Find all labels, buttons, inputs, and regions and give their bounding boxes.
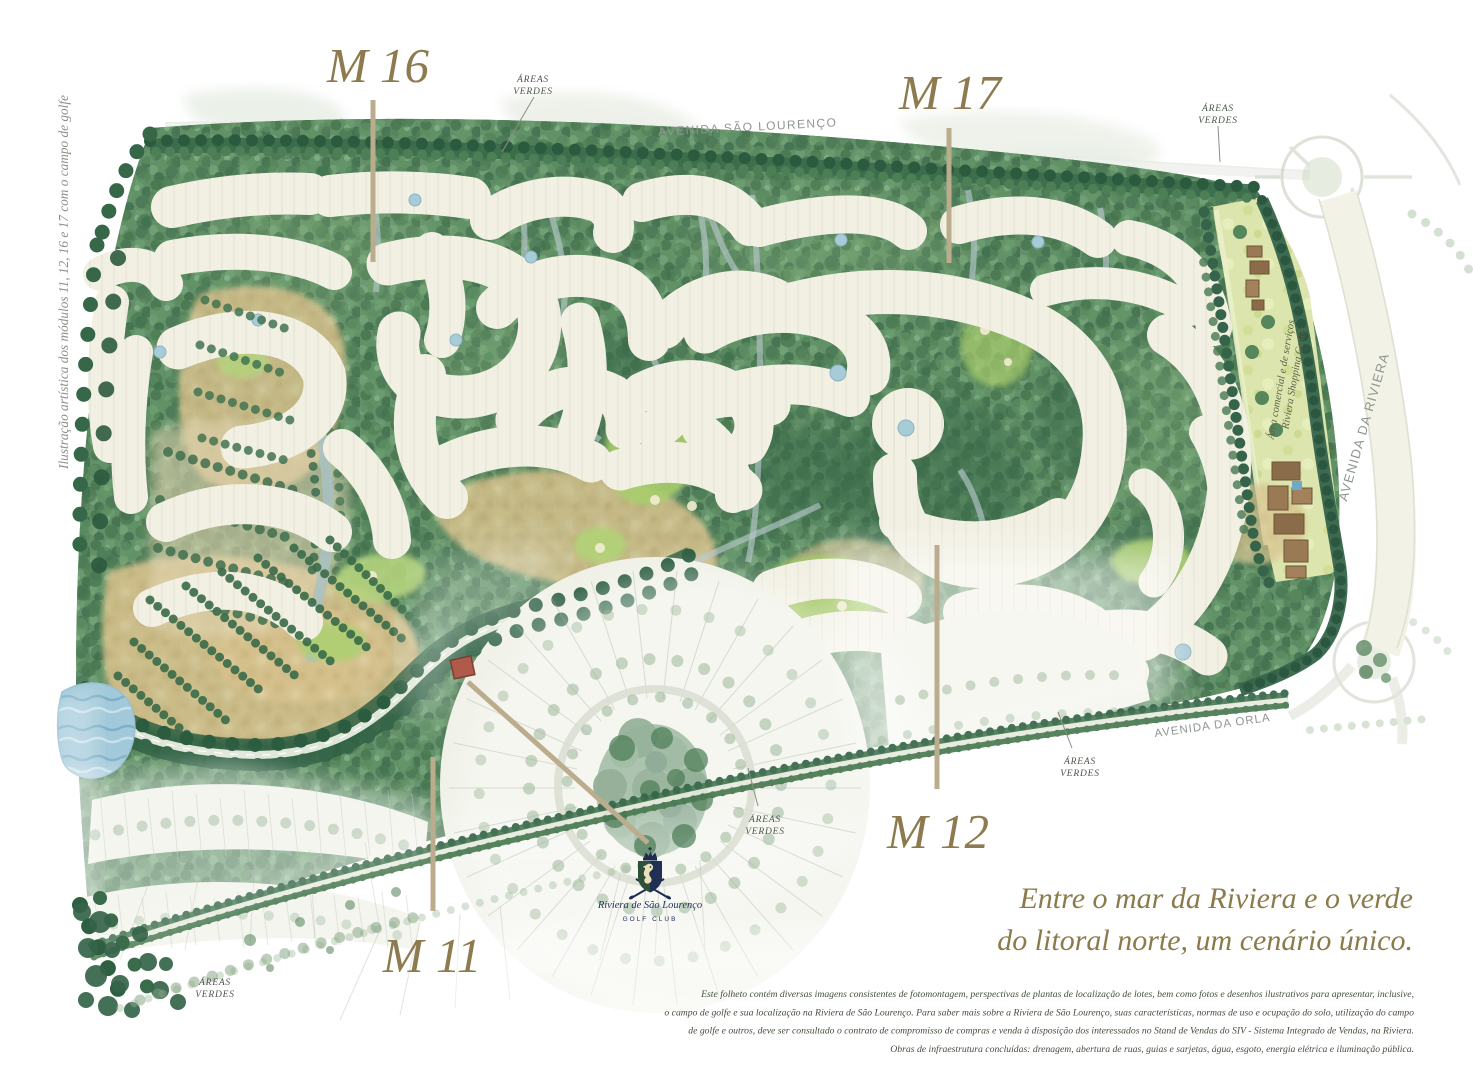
svg-text:M 11: M 11 bbox=[382, 928, 481, 983]
svg-text:o campo de golfe e sua localiz: o campo de golfe e sua localização na Ri… bbox=[664, 1007, 1414, 1018]
svg-text:Obras de infraestrutura conclu: Obras de infraestrutura concluídas: dren… bbox=[890, 1044, 1414, 1055]
svg-text:VERDES: VERDES bbox=[195, 990, 235, 1000]
svg-text:ÁREAS: ÁREAS bbox=[748, 813, 781, 825]
svg-text:M 12: M 12 bbox=[886, 804, 989, 859]
svg-text:ÁREAS: ÁREAS bbox=[1201, 102, 1234, 114]
svg-text:Ilustração artística dos módul: Ilustração artística dos módulos 11, 12,… bbox=[56, 95, 71, 470]
svg-text:Entre o mar da Riviera e o ver: Entre o mar da Riviera e o verde bbox=[1018, 882, 1413, 915]
svg-text:Riviera de São Lourenço: Riviera de São Lourenço bbox=[597, 900, 702, 911]
svg-text:M 16: M 16 bbox=[326, 38, 430, 93]
svg-text:ÁREAS: ÁREAS bbox=[1063, 755, 1096, 767]
svg-text:do litoral norte, um cenário ú: do litoral norte, um cenário único. bbox=[997, 924, 1413, 957]
svg-text:VERDES: VERDES bbox=[513, 87, 553, 97]
svg-text:de golfe e outros, deve ser co: de golfe e outros, deve ser consultado o… bbox=[688, 1026, 1414, 1037]
svg-text:VERDES: VERDES bbox=[745, 827, 785, 837]
svg-text:VERDES: VERDES bbox=[1198, 116, 1238, 126]
svg-text:M 17: M 17 bbox=[898, 65, 1004, 120]
svg-text:GOLF CLUB: GOLF CLUB bbox=[623, 916, 678, 923]
svg-text:ÁREAS: ÁREAS bbox=[198, 976, 231, 988]
svg-text:VERDES: VERDES bbox=[1060, 769, 1100, 779]
svg-text:ÁREAS: ÁREAS bbox=[516, 73, 549, 85]
svg-text:Este folheto contém diversas i: Este folheto contém diversas imagens con… bbox=[700, 989, 1414, 1000]
